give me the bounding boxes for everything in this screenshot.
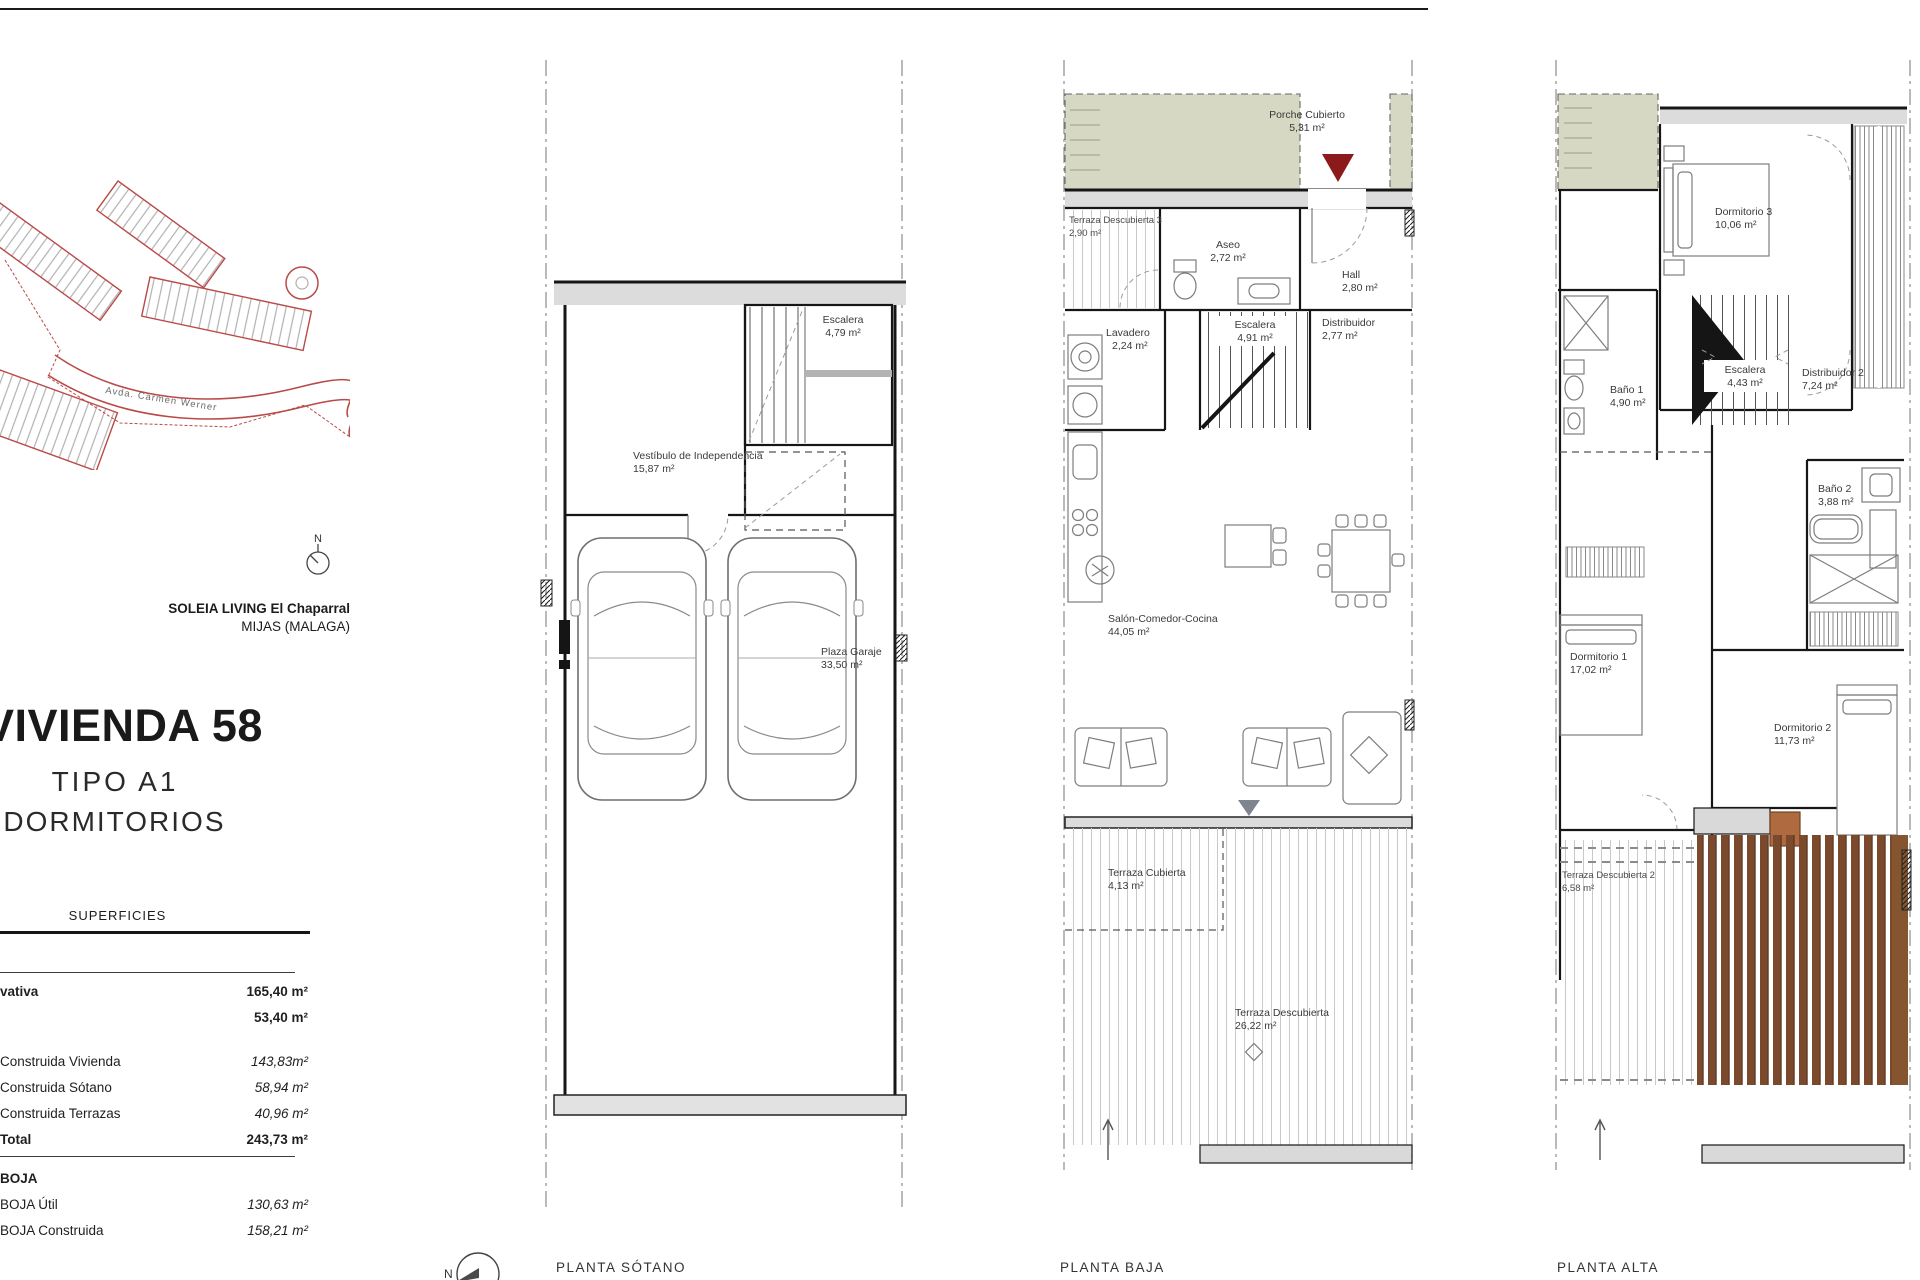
label-terraza3-area: 2,90 m² <box>1069 228 1101 239</box>
surface-row: BOJA Útil 130,63 m² <box>0 1191 308 1217</box>
label-escalera-sotano-area: 4,79 m² <box>825 327 861 339</box>
surface-row-label: vativa <box>0 984 38 999</box>
bano1-fixtures <box>1564 296 1608 434</box>
party-wall-anchor <box>1405 210 1414 236</box>
label-terraza-descubierta-area: 26,22 m² <box>1235 1020 1277 1032</box>
label-terraza3-name: Terraza Descubierta 3 <box>1069 215 1162 226</box>
surface-row: Construida Vivienda 143,83m² <box>0 1048 308 1074</box>
label-lavadero-area: 2,24 m² <box>1112 340 1148 352</box>
party-wall-anchor <box>1902 850 1911 910</box>
surface-row-value: 243,73 m² <box>246 1132 308 1147</box>
label-dormitorio3-area: 10,06 m² <box>1715 219 1757 231</box>
surface-row: 53,40 m² <box>0 1004 308 1030</box>
site-housing-row-2 <box>97 181 225 288</box>
brand-line1: SOLEIA LIVING El Chaparral <box>60 600 350 618</box>
wall-pier <box>559 660 570 669</box>
label-porche-name: Porche Cubierto <box>1269 109 1345 121</box>
unit-bedrooms: 3 DORMITORIOS <box>0 806 226 838</box>
label-salon-name: Salón-Comedor-Cocina <box>1108 613 1218 625</box>
label-distribuidor2-area: 7,24 m² <box>1802 380 1838 392</box>
surfaces-boja-header: BOJA <box>0 1171 38 1186</box>
surfaces-heavy-rule <box>0 931 310 934</box>
label-dormitorio1-area: 17,02 m² <box>1570 664 1612 676</box>
label-distribuidor-name: Distribuidor <box>1322 317 1376 329</box>
party-wall-anchor <box>541 580 552 606</box>
label-terraza2-area: 6,58 m² <box>1562 883 1594 894</box>
party-wall-anchor <box>896 635 907 661</box>
surface-row-label: BOJA Construida <box>0 1223 104 1238</box>
terrace-edge-band <box>1200 1145 1412 1163</box>
door-swing-arc <box>1642 795 1677 830</box>
wall-band-top <box>554 282 906 305</box>
surface-row-label: Construida Vivienda <box>0 1054 121 1069</box>
terrace-edge-band <box>1702 1145 1904 1163</box>
wardrobe-dormitorio1 <box>1566 547 1644 577</box>
label-garaje-name: Plaza Garaje <box>821 646 882 658</box>
surface-row-value: 165,40 m² <box>246 984 308 999</box>
caption-planta-baja: PLANTA BAJA <box>1060 1260 1165 1275</box>
label-terraza2-name: Terraza Descubierta 2 <box>1562 870 1655 881</box>
entry-door-opening <box>1308 189 1366 209</box>
stair-direction-marker <box>1238 800 1260 816</box>
surfaces-thin-rule-top <box>0 972 295 973</box>
label-garaje-area: 33,50 m² <box>821 659 863 671</box>
label-dormitorio2-name: Dormitorio 2 <box>1774 722 1831 734</box>
entry-door-swing-arc <box>1312 208 1367 263</box>
surface-row-label: Construida Terrazas <box>0 1106 121 1121</box>
north-label-top: N <box>314 533 322 545</box>
surface-row-value: 143,83m² <box>251 1054 308 1069</box>
unit-title: VIVIENDA 58 <box>0 700 263 752</box>
surface-row-value: 130,63 m² <box>247 1197 308 1212</box>
porch-area-right <box>1390 94 1412 190</box>
site-housing-row-4 <box>0 370 117 470</box>
label-dormitorio2-area: 11,73 m² <box>1774 735 1815 747</box>
sofa-group-2 <box>1243 728 1331 786</box>
caption-planta-alta: PLANTA ALTA <box>1557 1260 1659 1275</box>
wall-band-bottom <box>554 1095 906 1115</box>
surface-row: Construida Terrazas 40,96 m² <box>0 1100 308 1126</box>
label-salon-area: 44,05 m² <box>1108 626 1150 638</box>
label-dormitorio3-name: Dormitorio 3 <box>1715 206 1772 218</box>
kitchen-counter <box>1068 432 1114 602</box>
wall-band-top <box>1660 108 1907 124</box>
label-lavadero-name: Lavadero <box>1106 327 1150 339</box>
surface-row-label: Construida Sótano <box>0 1080 112 1095</box>
label-terraza-cubierta-area: 4,13 m² <box>1108 880 1144 892</box>
sofa-group-1 <box>1075 728 1167 786</box>
label-distribuidor-area: 2,77 m² <box>1322 330 1358 342</box>
lavadero-fixtures <box>1068 335 1102 424</box>
unit-type: TIPO A1 <box>0 766 240 798</box>
caption-planta-sotano: PLANTA SÓTANO <box>556 1260 686 1275</box>
label-escalera-alta-name: Escalera <box>1725 364 1766 376</box>
surface-row: Construida Sótano 58,94 m² <box>0 1074 308 1100</box>
label-aseo-name: Aseo <box>1216 239 1240 251</box>
street-label: Avda. Carmen Werner <box>105 385 218 414</box>
label-escalera-sotano-name: Escalera <box>823 314 864 326</box>
label-escalera-baja-area: 4,91 m² <box>1237 332 1273 344</box>
floorplan-baja: Porche Cubierto 5,31 m² Terraza Descubie… <box>1060 60 1420 1280</box>
floorplan-alta: Dormitorio 3 10,06 m² Baño 1 4,90 m² <box>1552 60 1917 1280</box>
label-escalera-baja-name: Escalera <box>1235 319 1276 331</box>
surface-row-label: BOJA Útil <box>0 1197 58 1212</box>
floorplan-sotano: Escalera 4,79 m² Vestíbulo de Independen… <box>540 60 920 1280</box>
site-plan-map: Avda. Carmen Werner <box>0 165 350 470</box>
surface-row-value: 58,94 m² <box>255 1080 308 1095</box>
label-hall-name: Hall <box>1342 269 1360 281</box>
surfaces-header: SUPERFICIES <box>0 908 235 923</box>
label-vestibulo-area: 15,87 m² <box>633 463 675 475</box>
label-bano2-area: 3,88 m² <box>1818 496 1854 508</box>
surfaces-table: vativa 165,40 m² 53,40 m² Construida Viv… <box>0 978 308 1243</box>
stair-alta <box>1692 295 1797 425</box>
site-housing-row-3 <box>142 277 312 350</box>
label-escalera-alta-area: 4,43 m² <box>1727 377 1763 389</box>
label-porche-area: 5,31 m² <box>1289 122 1325 134</box>
label-bano1-area: 4,90 m² <box>1610 397 1646 409</box>
north-arrow-bottom: N <box>420 1238 560 1280</box>
label-distribuidor2-name: Distribuidor 2 <box>1802 367 1864 379</box>
site-housing-row-1 <box>0 203 121 320</box>
surface-row: BOJA Construida 158,21 m² <box>0 1217 308 1243</box>
pergola-slats <box>1697 835 1892 1085</box>
entry-marker-triangle <box>1322 154 1354 182</box>
label-dormitorio1-name: Dormitorio 1 <box>1570 651 1627 663</box>
party-wall-anchor <box>1405 700 1414 730</box>
dining-table <box>1318 515 1404 607</box>
terrace-structure-block <box>1694 808 1770 834</box>
floorplan-sheet: Avda. Carmen Werner N SOLEIA LIVING El C… <box>0 0 1920 1280</box>
stair-sotano <box>745 305 892 530</box>
aseo-fixtures <box>1174 260 1290 304</box>
brand-block: SOLEIA LIVING El Chaparral MIJAS (MALAGA… <box>60 600 350 635</box>
door-swing-arc <box>1805 135 1850 180</box>
rear-sliding-door <box>1065 817 1412 828</box>
chaise-unit <box>1343 712 1401 804</box>
brand-line2: MIJAS (MALAGA) <box>60 618 350 636</box>
surface-row-value: 40,96 m² <box>255 1106 308 1121</box>
label-hall-area: 2,80 m² <box>1342 282 1378 294</box>
label-terraza-cubierta-name: Terraza Cubierta <box>1108 867 1186 879</box>
kitchen-island <box>1225 525 1286 567</box>
sheet-border-top <box>0 8 1428 10</box>
label-vestibulo-name: Vestíbulo de Independencia <box>633 450 763 462</box>
surface-row: vativa 165,40 m² <box>0 978 308 1004</box>
wardrobe-dormitorio3 <box>1854 126 1904 388</box>
surface-row-value: 53,40 m² <box>254 1010 308 1025</box>
bed-dormitorio2 <box>1837 685 1897 835</box>
porch-area <box>1065 94 1300 190</box>
surface-row-value: 158,21 m² <box>247 1223 308 1238</box>
site-roundabout <box>286 267 318 299</box>
surfaces-thin-rule-bottom <box>0 1156 295 1157</box>
garage-car-1 <box>571 538 713 800</box>
surface-row: Total 243,73 m² <box>0 1126 308 1152</box>
label-bano1-name: Baño 1 <box>1610 384 1643 396</box>
north-arrow-top: N <box>288 528 352 582</box>
surfaces-boja-header-row: BOJA <box>0 1165 308 1191</box>
wall-pier <box>559 620 570 654</box>
label-aseo-area: 2,72 m² <box>1210 252 1246 264</box>
surface-row-label: Total <box>0 1132 31 1147</box>
north-needle <box>456 1268 479 1280</box>
site-roundabout-center <box>296 277 308 289</box>
north-label-bottom: N <box>444 1267 453 1280</box>
label-terraza-descubierta-name: Terraza Descubierta <box>1235 1007 1329 1019</box>
label-bano2-name: Baño 2 <box>1818 483 1851 495</box>
